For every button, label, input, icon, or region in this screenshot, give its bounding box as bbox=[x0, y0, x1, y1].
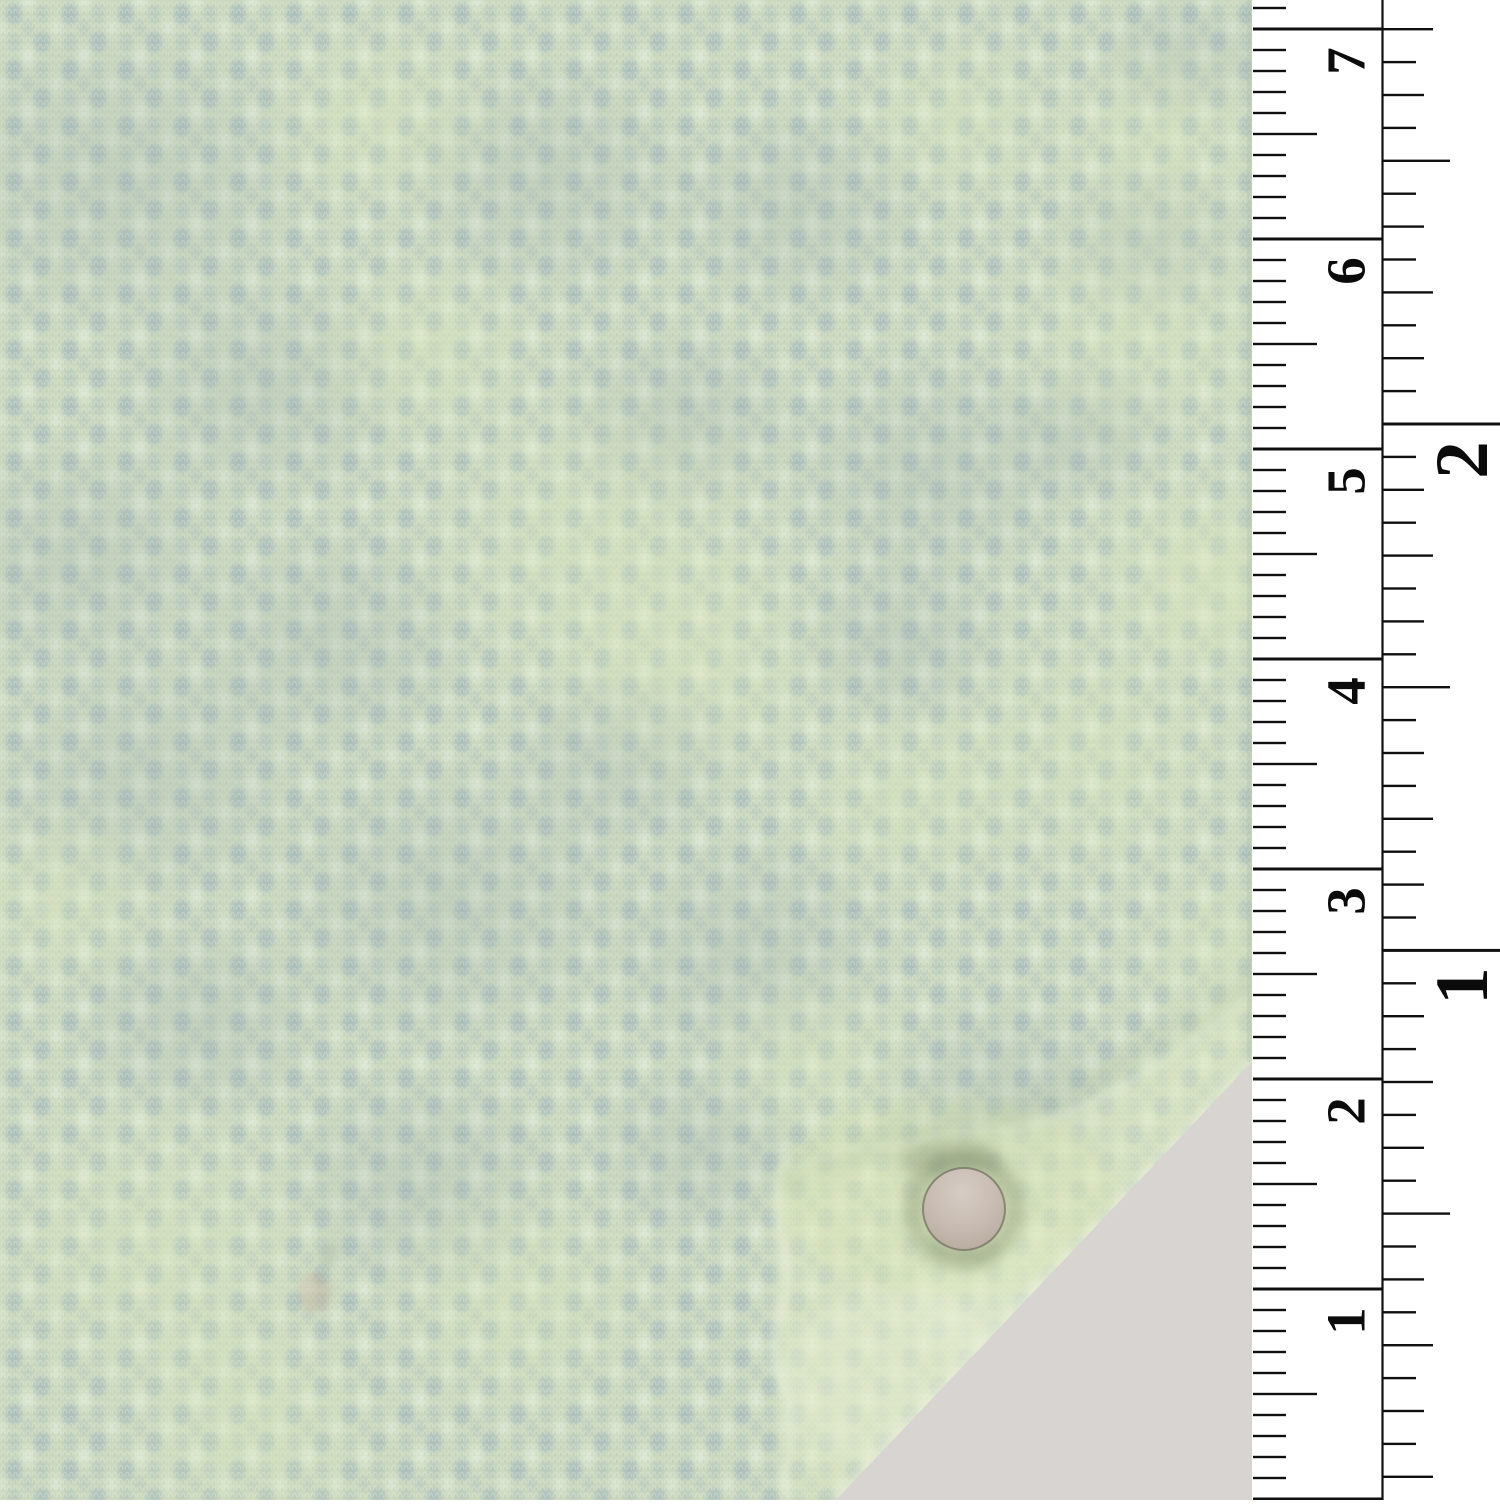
svg-text:4: 4 bbox=[1316, 677, 1377, 705]
svg-text:7: 7 bbox=[1316, 47, 1377, 75]
svg-text:3: 3 bbox=[1316, 887, 1377, 915]
svg-text:1: 1 bbox=[1421, 967, 1500, 1005]
svg-text:2: 2 bbox=[1421, 441, 1500, 479]
svg-text:1: 1 bbox=[1316, 1307, 1377, 1335]
svg-text:5: 5 bbox=[1316, 467, 1377, 495]
svg-text:6: 6 bbox=[1316, 257, 1377, 285]
svg-text:2: 2 bbox=[1316, 1097, 1377, 1125]
